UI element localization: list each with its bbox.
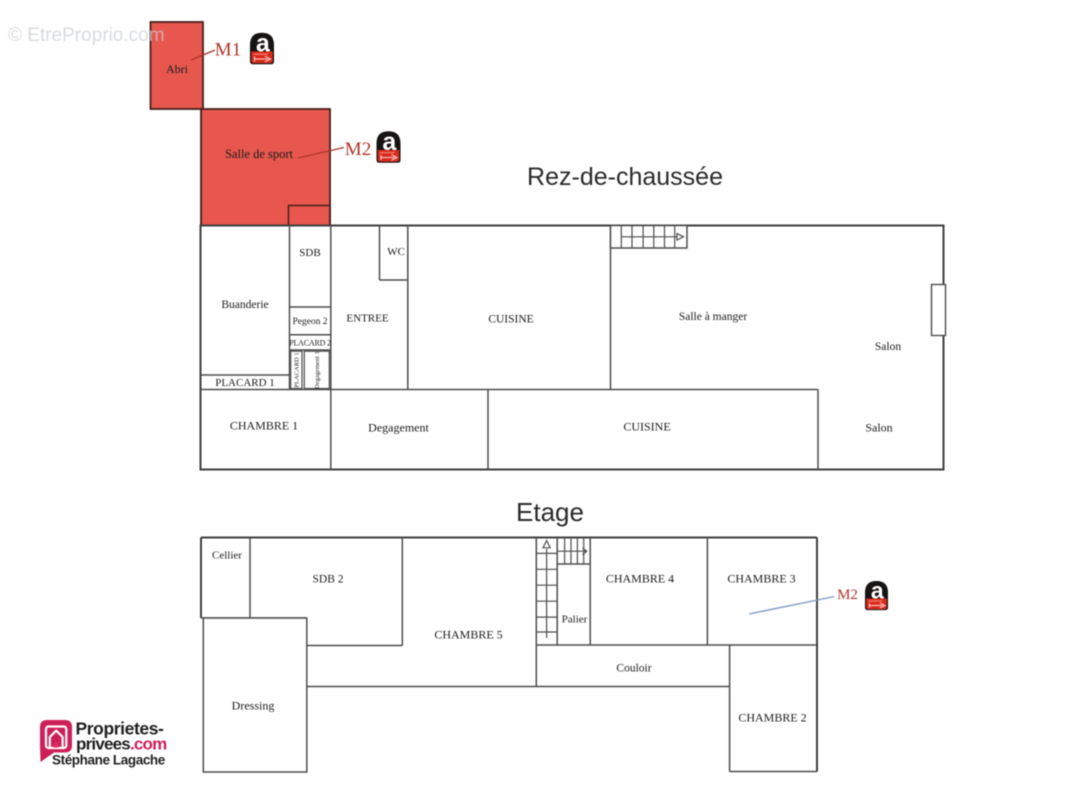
svg-text:SDB: SDB [299, 247, 320, 259]
svg-text:Degagement 1: Degagement 1 [314, 351, 321, 389]
svg-text:CHAMBRE 4: CHAMBRE 4 [606, 572, 674, 586]
svg-text:CHAMBRE 5: CHAMBRE 5 [434, 628, 502, 642]
svg-text:a: a [871, 578, 884, 604]
svg-text:WC: WC [387, 246, 405, 258]
svg-text:Rez-de-chaussée: Rez-de-chaussée [527, 163, 723, 191]
svg-text:M2: M2 [345, 139, 371, 160]
svg-text:Abri: Abri [166, 62, 189, 76]
svg-text:Salle à manger: Salle à manger [679, 311, 748, 323]
svg-text:Pegeon 2: Pegeon 2 [292, 317, 327, 327]
svg-text:Salon: Salon [865, 421, 892, 435]
svg-text:SDB 2: SDB 2 [313, 574, 344, 586]
svg-text:Salon: Salon [875, 341, 901, 353]
svg-text:PLACARD 1: PLACARD 1 [294, 352, 301, 387]
svg-text:Couloir: Couloir [616, 663, 651, 675]
svg-text:CHAMBRE 3: CHAMBRE 3 [727, 572, 795, 586]
svg-text:Degagement: Degagement [368, 421, 429, 435]
svg-text:Palier: Palier [562, 613, 588, 625]
svg-text:M1: M1 [215, 40, 241, 61]
svg-text:Salle de sport: Salle de sport [225, 147, 294, 161]
svg-text:© EtreProprio.com: © EtreProprio.com [8, 25, 165, 46]
svg-text:Cellier: Cellier [212, 549, 242, 561]
svg-text:a: a [382, 128, 397, 156]
svg-text:CHAMBRE 1: CHAMBRE 1 [230, 419, 298, 433]
svg-text:Dressing: Dressing [232, 699, 275, 713]
svg-text:CUISINE: CUISINE [623, 420, 670, 434]
svg-text:PLACARD 2: PLACARD 2 [289, 339, 331, 348]
svg-text:CHAMBRE 2: CHAMBRE 2 [738, 711, 806, 725]
svg-text:Buanderie: Buanderie [221, 299, 268, 311]
svg-text:ENTREE: ENTREE [346, 313, 388, 325]
svg-text:privees.com: privees.com [76, 735, 167, 754]
svg-text:a: a [256, 29, 271, 57]
svg-text:PLACARD 1: PLACARD 1 [215, 377, 275, 389]
svg-text:M2: M2 [837, 587, 858, 603]
svg-text:CUISINE: CUISINE [488, 314, 533, 326]
svg-text:Stéphane Lagache: Stéphane Lagache [52, 753, 166, 768]
svg-text:Etage: Etage [516, 497, 584, 527]
